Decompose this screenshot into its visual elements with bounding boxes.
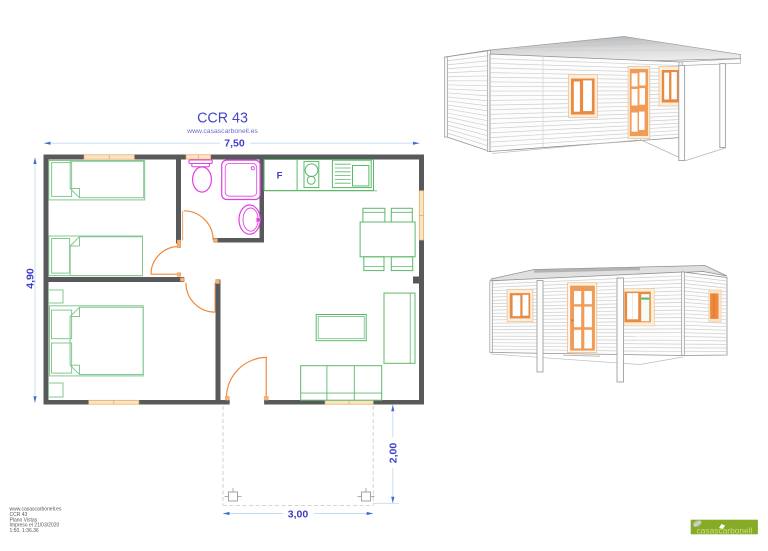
- svg-text:2,00: 2,00: [387, 443, 399, 464]
- svg-text:CCR 43: CCR 43: [197, 111, 248, 127]
- svg-text:www.casascarbonell.es: www.casascarbonell.es: [186, 128, 258, 135]
- svg-text:4,90: 4,90: [25, 268, 37, 289]
- svg-text:7,50: 7,50: [224, 138, 245, 150]
- svg-text:3,00: 3,00: [288, 508, 309, 520]
- svg-text:F: F: [277, 171, 283, 182]
- svg-text:1:50, 1:36.36: 1:50, 1:36.36: [10, 528, 39, 534]
- svg-text:casascarbonell: casascarbonell: [697, 525, 753, 535]
